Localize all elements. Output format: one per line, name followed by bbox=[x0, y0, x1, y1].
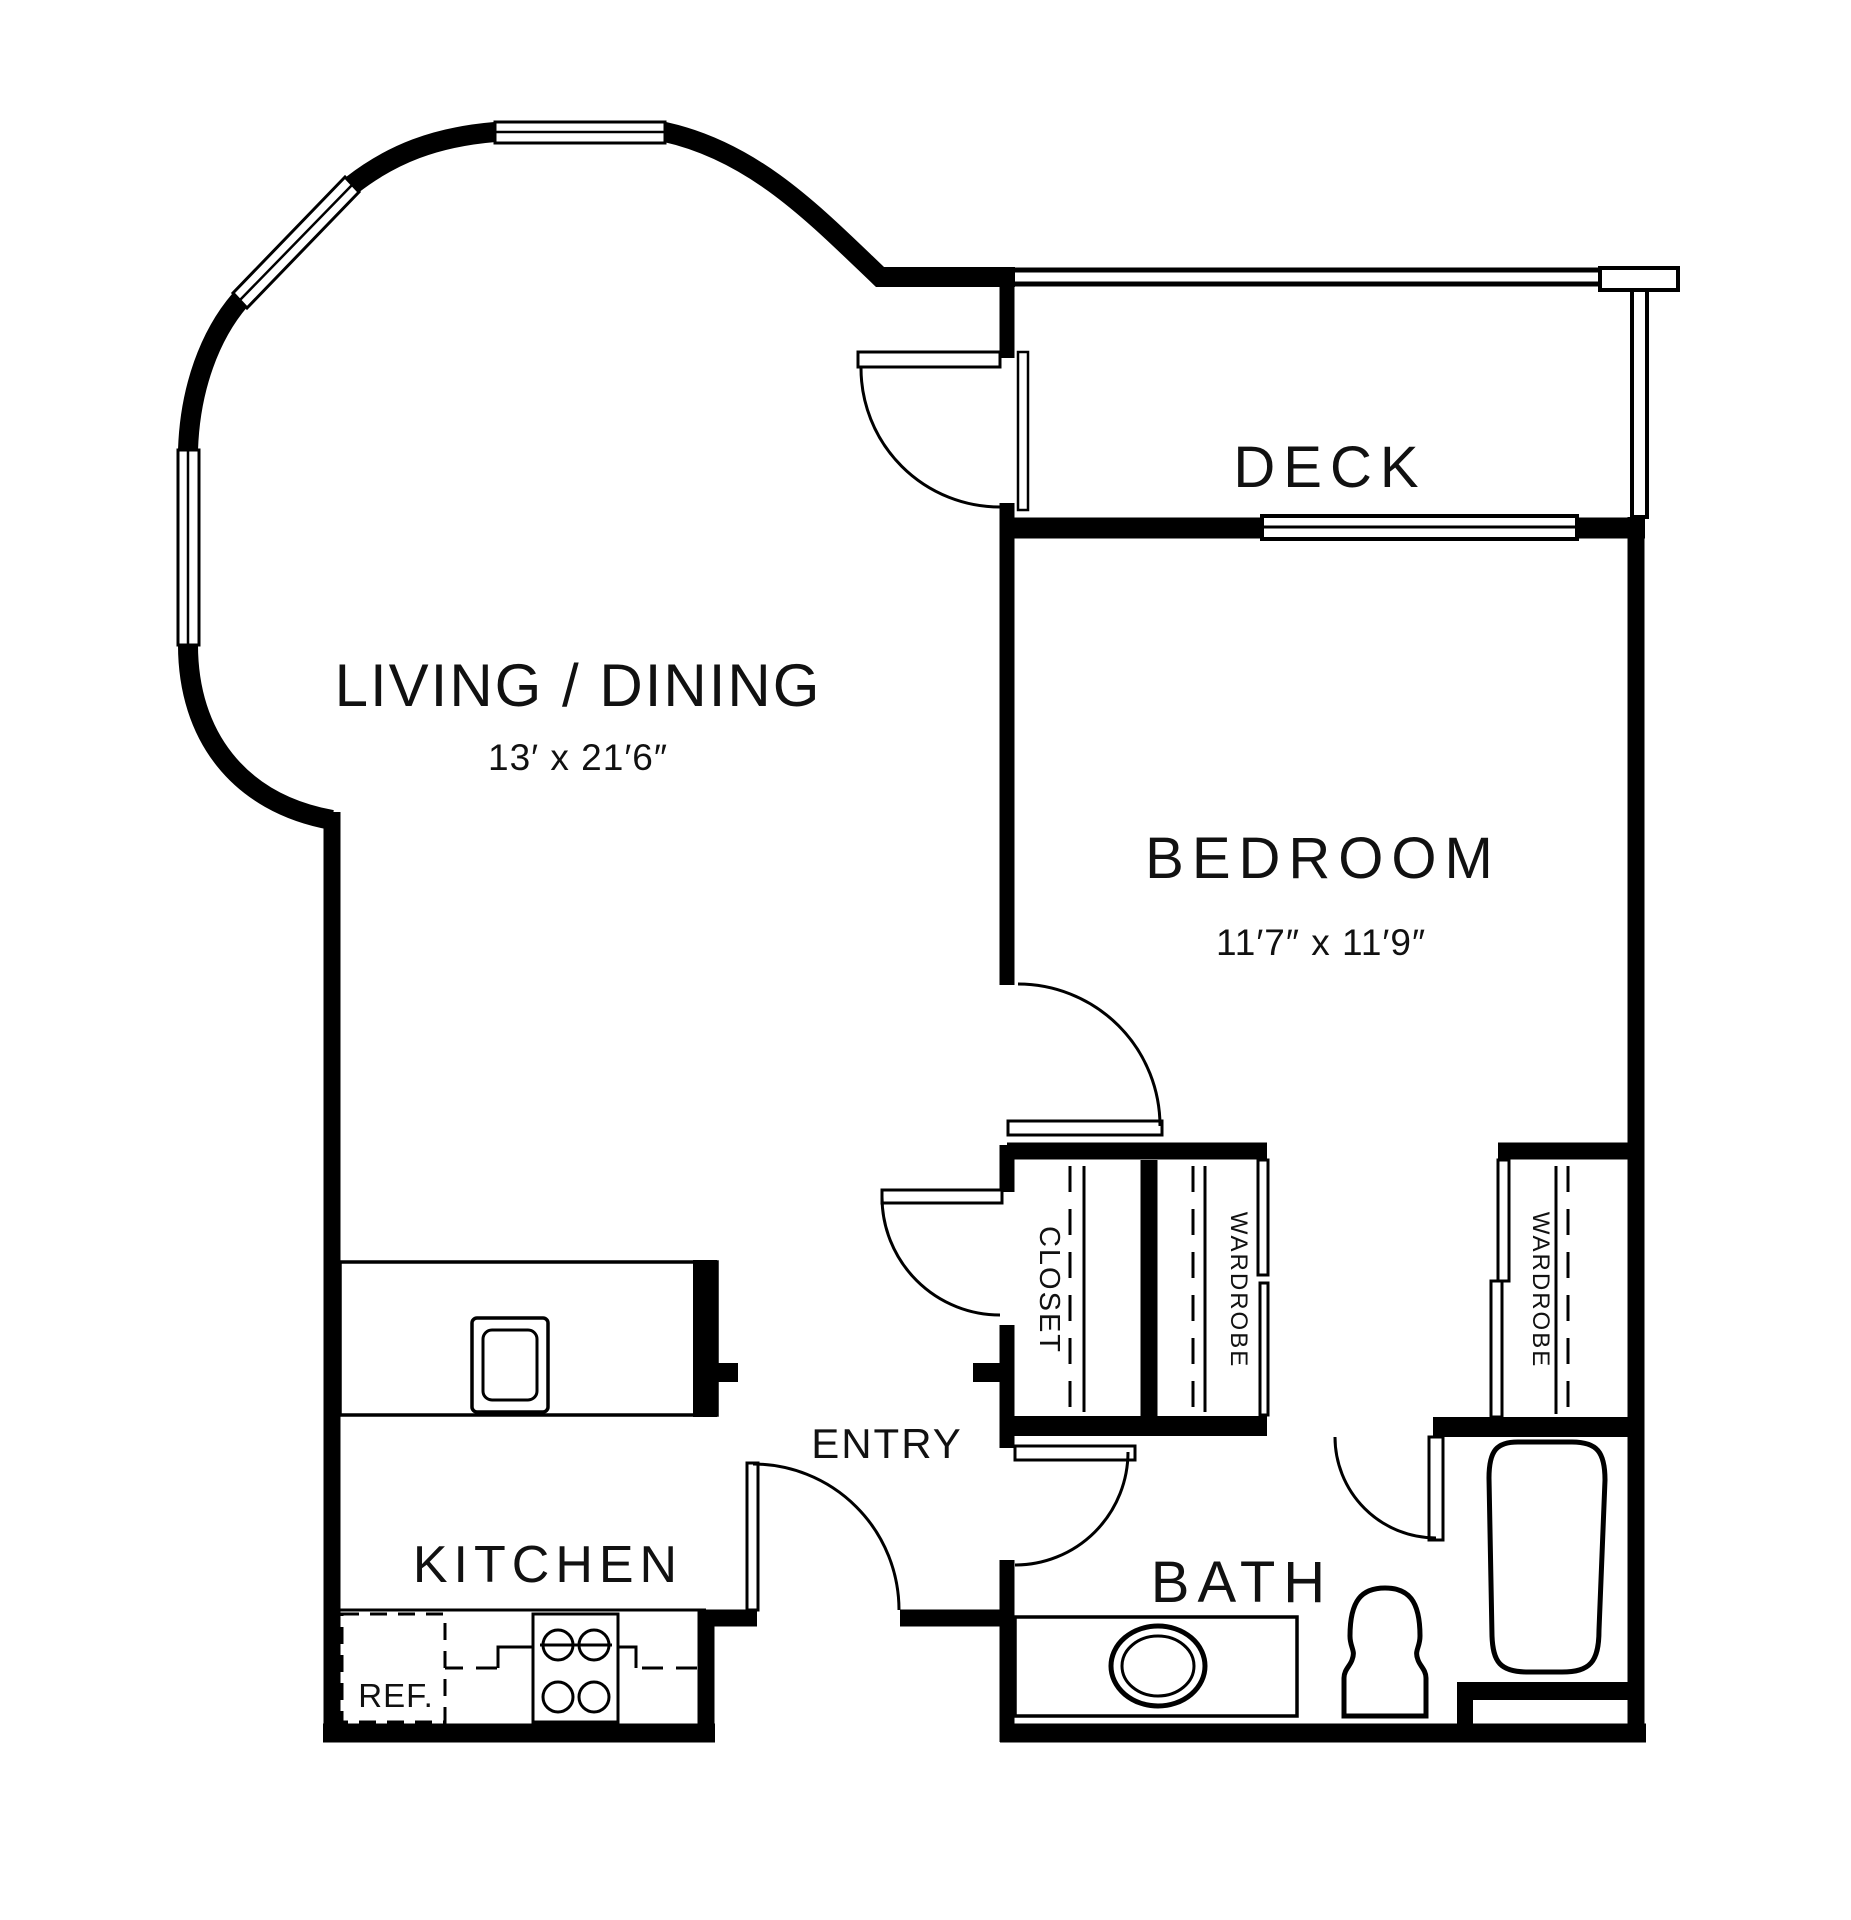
island-sink-inner bbox=[483, 1330, 537, 1400]
wardrobe-right-front-upper bbox=[1498, 1160, 1509, 1281]
bath-bedroom-door-swing-arc bbox=[1335, 1437, 1436, 1538]
deck-rail-cap bbox=[1600, 268, 1678, 290]
wardrobe-right-label: WARDROBE bbox=[1527, 1212, 1554, 1368]
entry-door-leaf bbox=[747, 1463, 758, 1610]
entry-door-swing-arc bbox=[753, 1464, 899, 1610]
kitchen-label: KITCHEN bbox=[413, 1536, 683, 1594]
entry-door bbox=[747, 1463, 899, 1610]
labels: LIVING / DINING 13′ x 21′6″ DECK BEDROOM… bbox=[335, 435, 1554, 1714]
bath-bedroom-door bbox=[1335, 1437, 1443, 1540]
bedroom-door-swing-arc bbox=[1018, 984, 1160, 1126]
closet-door bbox=[882, 1190, 1013, 1382]
bedroom-door-leaf bbox=[1008, 1121, 1162, 1135]
living-dining-label: LIVING / DINING bbox=[335, 652, 822, 719]
closet-label: CLOSET bbox=[1033, 1226, 1065, 1354]
burner bbox=[543, 1682, 573, 1712]
bath-label: BATH bbox=[1151, 1550, 1333, 1615]
closet-door-leaf bbox=[882, 1190, 1002, 1203]
wardrobe-middle-front-lower bbox=[1260, 1283, 1268, 1415]
deck-door-swing-arc bbox=[861, 368, 1000, 507]
bedroom-dimensions: 11′7″ x 11′9″ bbox=[1216, 922, 1426, 963]
bay-window-diagonal bbox=[233, 177, 359, 308]
bath-entry-door-leaf bbox=[1015, 1446, 1135, 1460]
burner bbox=[579, 1682, 609, 1712]
bay-windows bbox=[178, 122, 665, 645]
bay-window-top bbox=[495, 122, 665, 143]
closet-wall-stub bbox=[973, 1363, 1013, 1382]
wardrobe-right-front-lower bbox=[1491, 1281, 1502, 1417]
living-dining-dimensions: 13′ x 21′6″ bbox=[488, 737, 668, 778]
bay-window-left bbox=[178, 450, 199, 645]
deck-door bbox=[858, 352, 1028, 510]
bedroom-label: BEDROOM bbox=[1145, 826, 1501, 891]
kitchen-fixtures bbox=[338, 1260, 738, 1722]
refrigerator-label: REF. bbox=[358, 1677, 434, 1714]
entry-label: ENTRY bbox=[811, 1420, 963, 1467]
bedroom-window bbox=[1262, 516, 1577, 539]
exterior-walls bbox=[188, 132, 1646, 1742]
deck-door-threshold bbox=[1018, 352, 1028, 510]
toilet bbox=[1344, 1588, 1426, 1716]
wardrobe-middle-label: WARDROBE bbox=[1225, 1212, 1252, 1368]
floor-plan: LIVING / DINING 13′ x 21′6″ DECK BEDROOM… bbox=[0, 0, 1851, 1920]
tub-platform bbox=[1457, 1682, 1637, 1700]
bath-bedroom-door-leaf bbox=[1429, 1437, 1443, 1540]
vanity-sink-inner bbox=[1122, 1636, 1194, 1696]
kitchen-island-stub bbox=[717, 1363, 738, 1382]
wardrobe-middle-front-upper bbox=[1258, 1160, 1268, 1275]
tub-platform-stub bbox=[1457, 1682, 1473, 1742]
bath-entry-door bbox=[1015, 1446, 1135, 1565]
closet-door-swing-arc bbox=[882, 1197, 1000, 1315]
bath-entry-door-swing-arc bbox=[1015, 1452, 1128, 1565]
bedroom-door bbox=[1008, 984, 1162, 1135]
stove bbox=[533, 1614, 618, 1722]
deck-rail-post bbox=[1632, 290, 1647, 517]
kitchen-island-end-wall bbox=[693, 1260, 717, 1417]
deck-door-leaf bbox=[858, 352, 1000, 367]
bathtub bbox=[1489, 1442, 1605, 1672]
deck-label: DECK bbox=[1233, 435, 1426, 500]
